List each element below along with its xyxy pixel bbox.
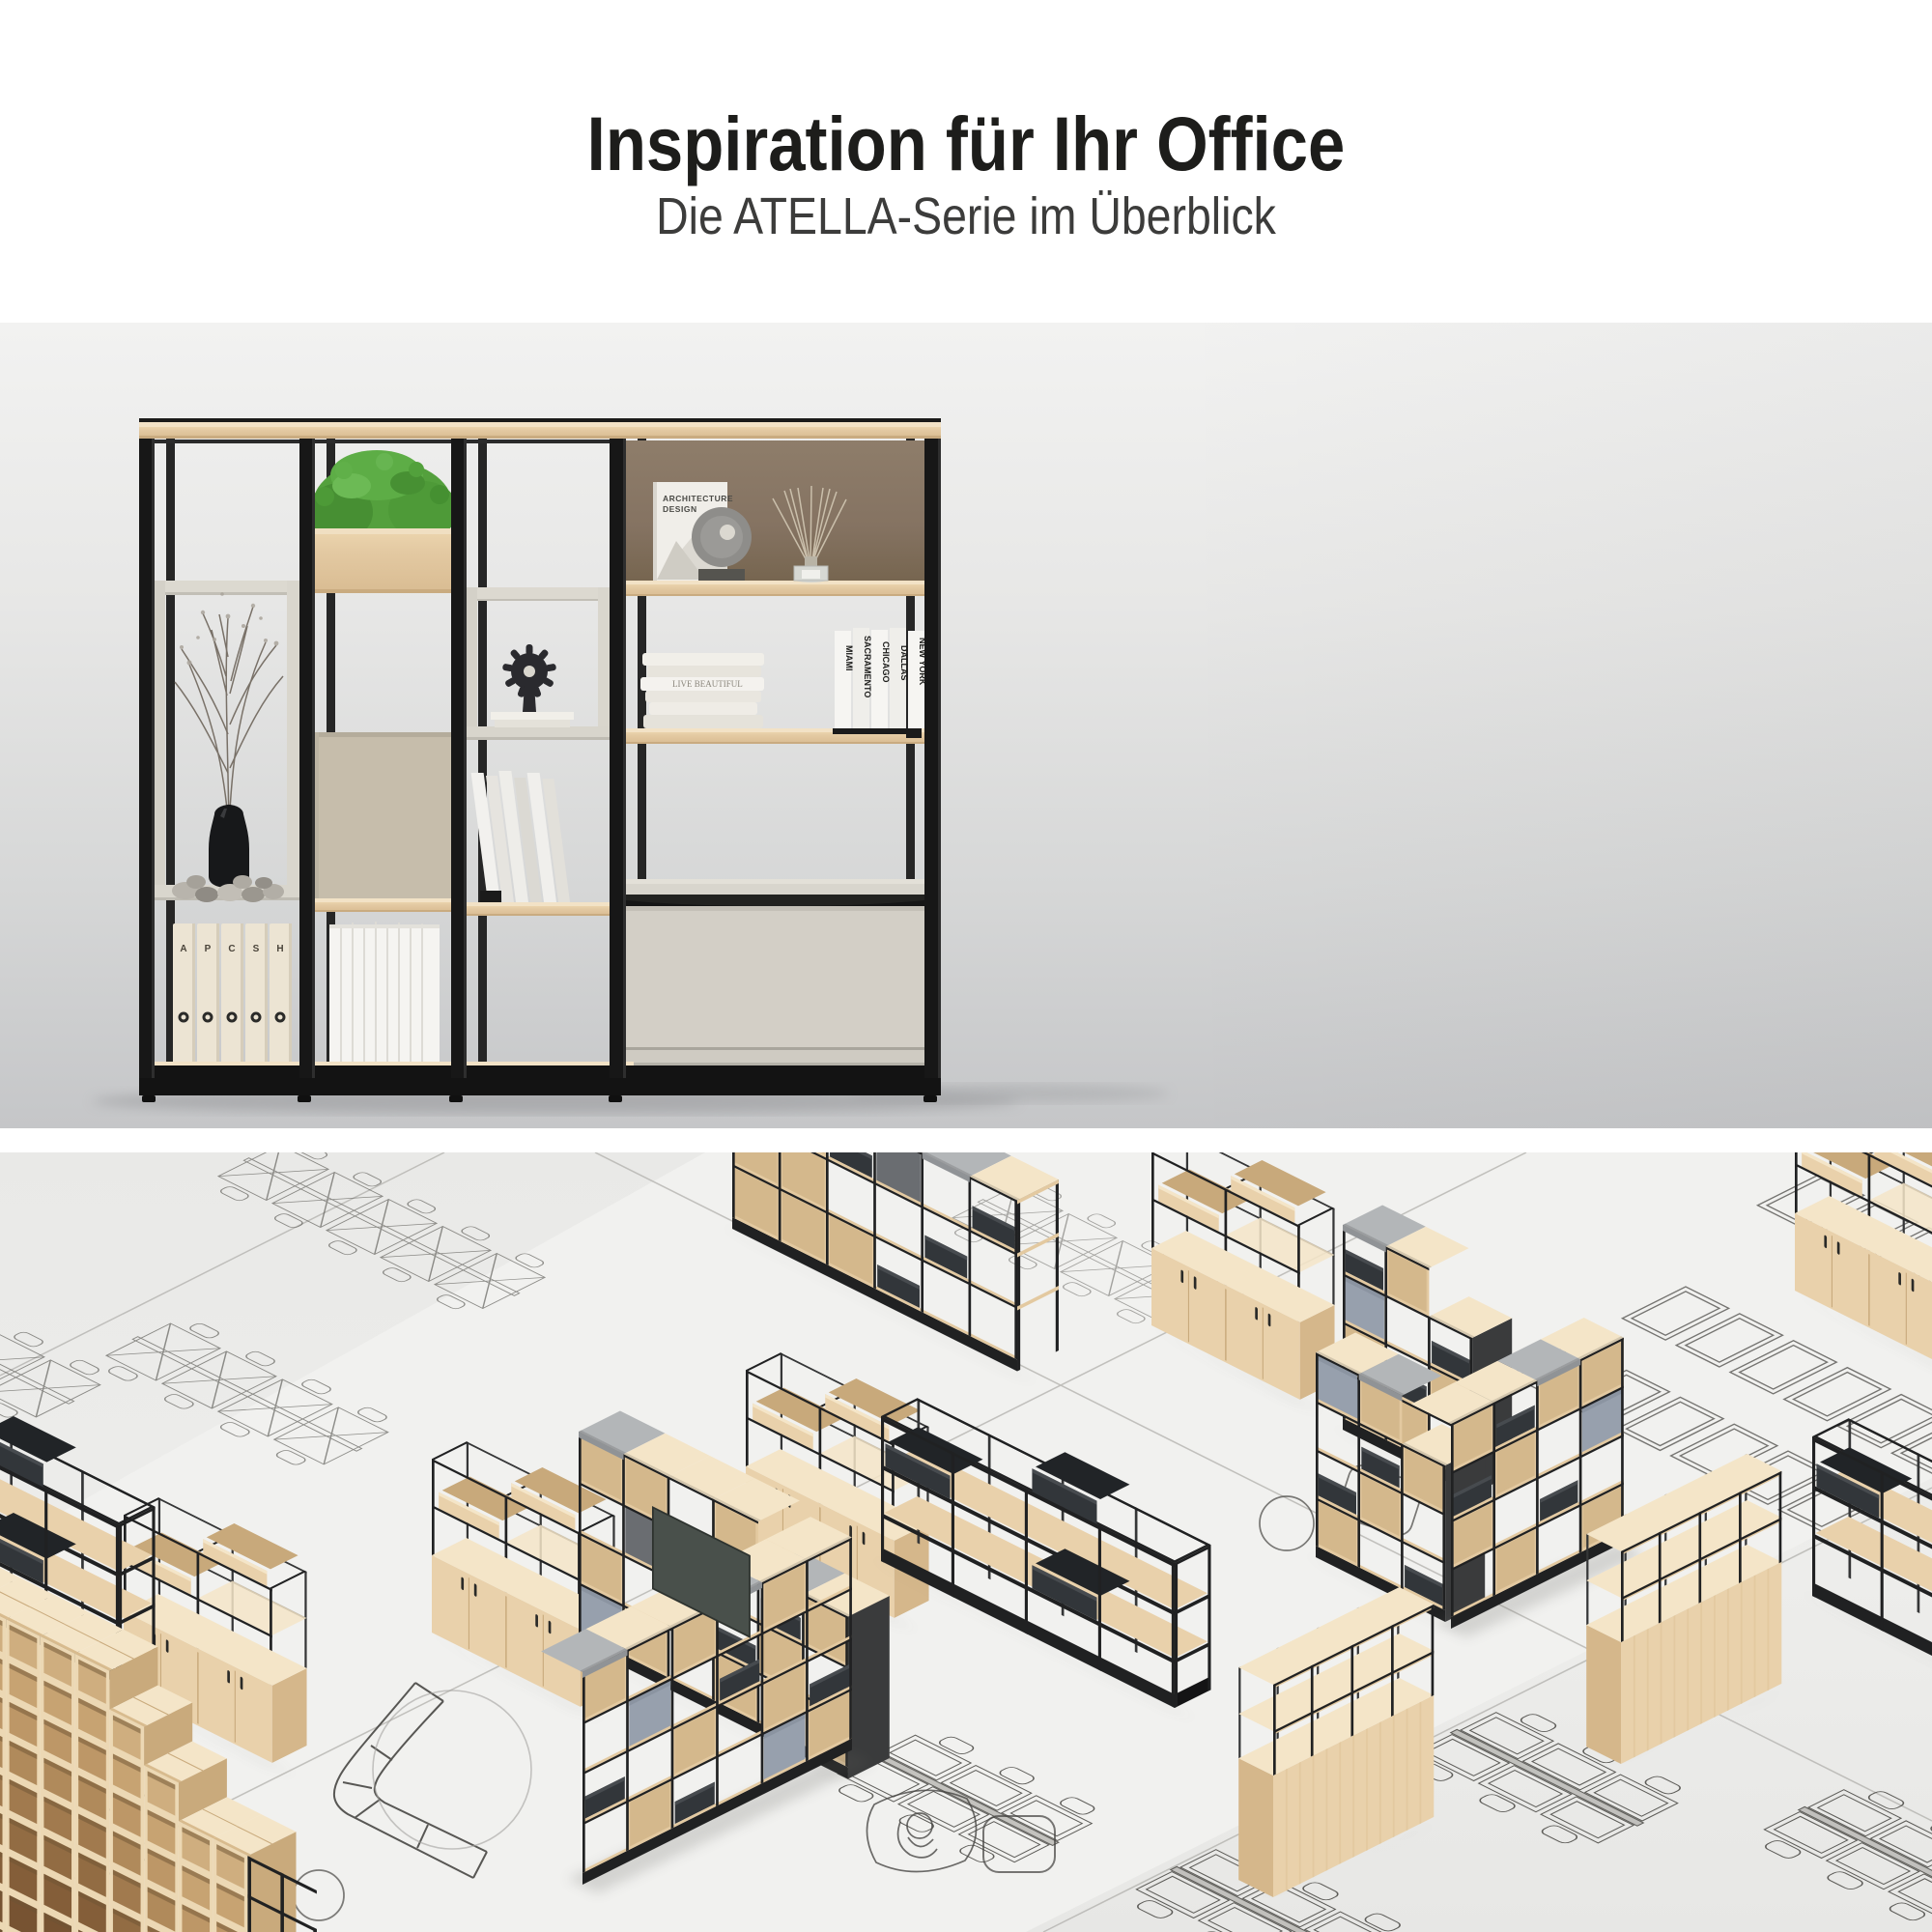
- svg-text:P: P: [205, 944, 212, 954]
- svg-text:DESIGN: DESIGN: [663, 504, 697, 514]
- svg-text:SACRAMENTO: SACRAMENTO: [863, 636, 872, 697]
- svg-text:A: A: [180, 944, 186, 954]
- svg-text:LIVE BEAUTIFUL: LIVE BEAUTIFUL: [672, 679, 743, 689]
- svg-text:CHICAGO: CHICAGO: [881, 641, 891, 683]
- svg-text:H: H: [276, 944, 283, 954]
- svg-text:DALLAS: DALLAS: [899, 645, 909, 681]
- svg-text:C: C: [228, 944, 235, 954]
- svg-text:S: S: [253, 944, 260, 954]
- svg-text:ARCHITECTURE: ARCHITECTURE: [663, 494, 733, 503]
- svg-text:MIAMI: MIAMI: [844, 645, 854, 671]
